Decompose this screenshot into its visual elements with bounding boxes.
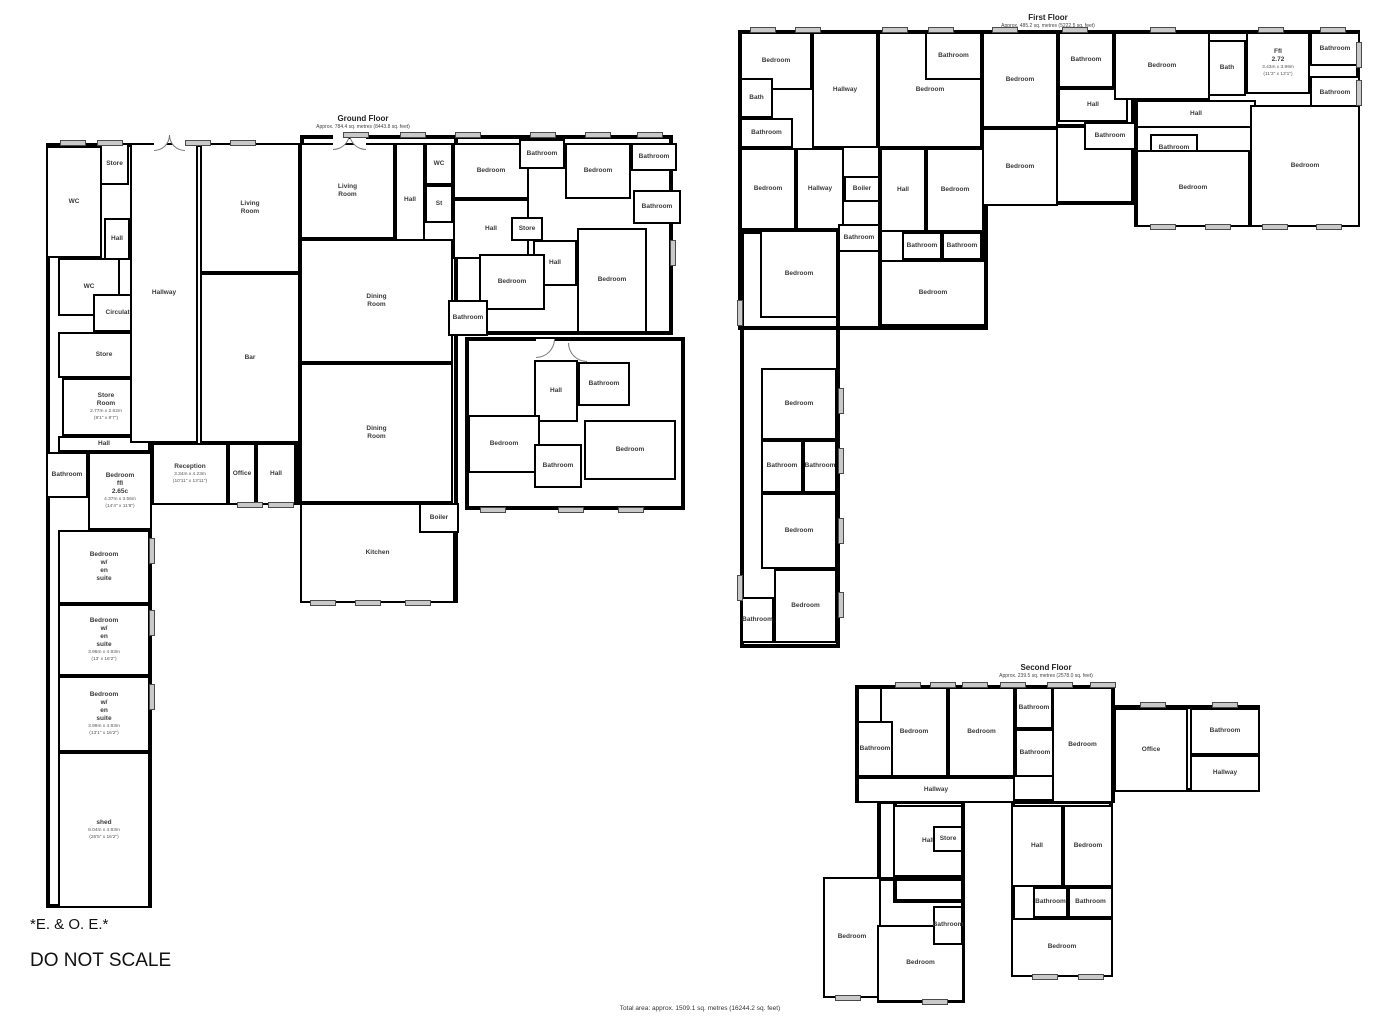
room-bedroom: Bedroom	[1011, 918, 1113, 977]
room-label: Bedroom	[900, 728, 929, 736]
room-bathroom: Bathroom	[838, 224, 880, 252]
window-marker	[530, 132, 556, 138]
room-label: Hall	[404, 196, 416, 204]
room-label: Store	[96, 351, 113, 359]
room-wc: WC	[425, 143, 453, 185]
room-label: Bathroom	[527, 150, 558, 158]
room-label: Bathroom	[453, 314, 484, 322]
room-label: Bathroom	[1210, 727, 1241, 735]
room-dimensions: 3.43m x 3.99m (11'3" x 13'1")	[1262, 65, 1294, 78]
room-label: Bathroom	[844, 234, 875, 242]
room-label: Bathroom	[1071, 56, 1102, 64]
window-marker	[1205, 224, 1231, 230]
room-label: Hallway	[1213, 769, 1237, 777]
window-marker	[405, 600, 431, 606]
window-marker	[737, 300, 743, 326]
room-label: Store	[106, 160, 123, 168]
room-label: Bathroom	[1075, 898, 1106, 906]
room-bedroom: Bedroom	[760, 230, 838, 318]
window-marker	[838, 448, 844, 474]
room-label: Bath	[1220, 64, 1234, 72]
window-marker	[1212, 702, 1238, 708]
room-label: Bedroom	[785, 527, 814, 535]
room-label: Bedroom ffl 2.65c	[106, 472, 135, 496]
window-marker	[480, 507, 506, 513]
room-hallway: Hallway	[857, 777, 1015, 803]
room-ffl-2-72: Ffl 2.723.43m x 3.99m (11'3" x 13'1")	[1246, 32, 1310, 94]
window-marker	[343, 132, 369, 138]
room-bar: Bar	[200, 273, 300, 443]
room-bathroom: Bathroom	[1015, 729, 1055, 777]
room-label: Bedroom	[906, 959, 935, 967]
room-wc: WC	[46, 146, 102, 258]
room-label: Bedroom	[584, 167, 613, 175]
room-bedroom: Bedroom	[774, 569, 837, 643]
window-marker	[1356, 80, 1362, 106]
room-bathroom: Bathroom	[761, 440, 803, 493]
room-label: Hall	[1031, 842, 1043, 850]
room-label: Kitchen	[366, 549, 390, 557]
room-label: Hall	[111, 235, 123, 243]
room-bedroom-w-en-suite: Bedroom w/ en suite3.96m x 4.93m (13' x …	[58, 604, 150, 676]
room-label: Hall	[1087, 101, 1099, 109]
room-office: Office	[228, 443, 256, 505]
window-marker	[149, 610, 155, 636]
floor-title-text: Ground Floor	[253, 114, 473, 123]
room-living-room: Living Room	[300, 143, 395, 239]
room-bathroom: Bathroom	[942, 232, 982, 260]
room-bedroom: Bedroom	[823, 877, 881, 998]
window-marker	[1090, 682, 1116, 688]
room-dimensions: 2.77m x 2.62m (9'1" x 8'7")	[90, 409, 122, 422]
window-marker	[1032, 974, 1058, 980]
window-marker	[962, 682, 988, 688]
room-bathroom: Bathroom	[925, 32, 982, 80]
room-bedroom: Bedroom	[761, 368, 837, 440]
window-marker	[185, 140, 211, 146]
room-label: Hall	[485, 225, 497, 233]
room-label: Bathroom	[639, 153, 670, 161]
room-bedroom-w-en-suite: Bedroom w/ en suite	[58, 530, 150, 604]
room-bedroom: Bedroom	[982, 128, 1058, 206]
window-marker	[97, 140, 123, 146]
room-bathroom: Bathroom	[534, 444, 582, 488]
room-bedroom: Bedroom	[1052, 687, 1113, 803]
room-label: Bathroom	[1095, 132, 1126, 140]
room-label: Store Room	[97, 392, 115, 408]
window-marker	[558, 507, 584, 513]
room-bedroom: Bedroom	[1114, 32, 1210, 100]
room-label: Office	[1142, 746, 1160, 754]
room-label: Bedroom	[498, 278, 527, 286]
room-label: Hall	[98, 440, 110, 448]
floor-title-text: Second Floor	[936, 663, 1156, 672]
first-floor-title: First FloorApprox. 485.2 sq. metres (522…	[938, 13, 1158, 29]
room-hall: Hall	[256, 443, 296, 505]
room-bathroom: Bathroom	[1015, 687, 1053, 729]
room-dimensions: 3.99m x 4.93m (13'1" x 16'2")	[88, 724, 120, 737]
room-bedroom: Bedroom	[880, 260, 986, 326]
room-bedroom: Bedroom	[479, 254, 545, 310]
room-dimensions: 3.34m x 4.23m (10'11" x 13'11")	[173, 472, 207, 485]
room-bathroom: Bathroom	[1033, 887, 1068, 918]
room-boiler: Boiler	[844, 176, 880, 202]
window-marker	[795, 27, 821, 33]
room-label: Hall	[550, 387, 562, 395]
room-label: Bedroom	[1291, 162, 1320, 170]
room-bathroom: Bathroom	[1068, 887, 1113, 918]
window-marker	[895, 682, 921, 688]
window-marker	[268, 502, 294, 508]
window-marker	[1140, 702, 1166, 708]
room-label: Ffl 2.72	[1272, 48, 1285, 64]
room-bathroom: Bathroom	[519, 139, 565, 169]
room-store: Store	[511, 217, 543, 241]
room-bedroom: Bedroom	[926, 148, 984, 232]
window-marker	[670, 240, 676, 266]
room-label: Bathroom	[1020, 749, 1051, 757]
room-label: Bedroom	[477, 167, 506, 175]
room-bathroom: Bathroom	[1310, 32, 1360, 66]
window-marker	[737, 575, 743, 601]
room-label: Bathroom	[1320, 45, 1351, 53]
room-label: Hallway	[833, 86, 857, 94]
room-label: Hall	[897, 186, 909, 194]
room-label: Hall	[270, 470, 282, 478]
room-store: Store	[100, 143, 129, 185]
room-label: Bathroom	[907, 242, 938, 250]
room-bedroom: Bedroom	[468, 415, 540, 473]
room-label: Bedroom	[967, 728, 996, 736]
room-label: Office	[233, 470, 251, 478]
eoe-note: *E. & O. E.*	[30, 916, 108, 933]
window-marker	[1262, 224, 1288, 230]
room-label: Bedroom	[941, 186, 970, 194]
room-hall: Hall	[880, 148, 926, 232]
room-label: Bedroom	[791, 602, 820, 610]
room-bathroom: Bathroom	[803, 440, 837, 493]
room-bathroom: Bathroom	[1058, 32, 1114, 88]
room-dining-room: Dining Room	[300, 363, 453, 503]
room-label: Bathroom	[642, 203, 673, 211]
room-hallway: Hallway	[1190, 755, 1260, 792]
total-area-note: Total area: approx. 1509.1 sq. metres (1…	[560, 1005, 840, 1012]
room-bedroom-w-en-suite: Bedroom w/ en suite3.99m x 4.93m (13'1" …	[58, 676, 150, 752]
window-marker	[585, 132, 611, 138]
room-label: Bathroom	[751, 129, 782, 137]
room-label: Hallway	[924, 786, 948, 794]
window-marker	[750, 27, 776, 33]
room-label: Boiler	[853, 185, 871, 193]
room-bathroom: Bathroom	[631, 143, 677, 171]
floorplan-canvas: *E. & O. E.* DO NOT SCALE Total area: ap…	[0, 0, 1400, 1018]
room-bathroom: Bathroom	[578, 362, 630, 406]
room-bathroom: Bathroom	[740, 118, 793, 148]
room-label: Reception	[174, 463, 205, 471]
room-bedroom: Bedroom	[761, 493, 837, 569]
room-label: Bedroom	[1179, 184, 1208, 192]
room-label: St	[436, 200, 443, 208]
room-label: Bedroom w/ en suite	[90, 691, 119, 724]
room-bathroom: Bathroom	[1190, 708, 1260, 755]
room-living-room: Living Room	[200, 143, 300, 273]
window-marker	[455, 132, 481, 138]
window-marker	[835, 995, 861, 1001]
do-not-scale-note: DO NOT SCALE	[30, 950, 171, 972]
room-bathroom: Bathroom	[933, 906, 963, 945]
window-marker	[1047, 682, 1073, 688]
room-label: Bedroom	[762, 57, 791, 65]
room-shed: shed8.04m x 4.93m (26'5" x 16'2")	[58, 752, 150, 908]
room-label: Store	[519, 225, 536, 233]
room-label: Bedroom	[754, 185, 783, 193]
room-label: Bedroom	[838, 933, 867, 941]
window-marker	[237, 502, 263, 508]
room-label: Bedroom	[785, 400, 814, 408]
room-label: Bathroom	[805, 462, 836, 470]
room-label: WC	[69, 198, 80, 206]
ground-floor-title: Ground FloorApprox. 784.4 sq. metres (84…	[253, 114, 473, 130]
room-label: Bathroom	[742, 616, 773, 624]
room-label: Hallway	[808, 185, 832, 193]
room-bedroom: Bedroom	[1136, 150, 1250, 227]
room-label: Bath	[749, 94, 763, 102]
room-label: Bedroom	[1068, 741, 1097, 749]
room-label: Bedroom	[785, 270, 814, 278]
room-label: Bathroom	[938, 52, 969, 60]
window-marker	[230, 140, 256, 146]
room-hallway: Hallway	[796, 148, 844, 230]
room-label: Bathroom	[1019, 704, 1050, 712]
room-label: Bathroom	[543, 462, 574, 470]
room-bath: Bath	[740, 78, 773, 118]
room-bedroom: Bedroom	[740, 148, 796, 230]
window-marker	[838, 388, 844, 414]
room-label: Bathroom	[767, 462, 798, 470]
second-floor-title: Second FloorApprox. 239.5 sq. metres (25…	[936, 663, 1156, 679]
window-marker	[1150, 224, 1176, 230]
room-bathroom: Bathroom	[741, 597, 774, 643]
room-bedroom: Bedroom	[453, 143, 529, 199]
room-bathroom: Bathroom	[1084, 122, 1136, 150]
room-label: Bedroom	[490, 440, 519, 448]
room-label: Bedroom w/ en suite	[90, 551, 119, 584]
room-label: Bar	[245, 354, 256, 362]
window-marker	[149, 684, 155, 710]
room-bedroom: Bedroom	[1250, 105, 1360, 227]
floor-title-area: Approx. 485.2 sq. metres (5222.5 sq. fee…	[938, 23, 1158, 29]
room-label: Dining Room	[366, 425, 386, 441]
room-label: Bathroom	[1320, 89, 1351, 97]
room-bedroom: Bedroom	[982, 32, 1058, 128]
room-bedroom: Bedroom	[1063, 805, 1113, 887]
room-hallway: Hallway	[130, 143, 198, 443]
window-marker	[1000, 682, 1026, 688]
room-label: Bedroom	[916, 86, 945, 94]
window-marker	[1316, 224, 1342, 230]
room-store: Store	[933, 826, 963, 852]
room-label: Store	[940, 835, 957, 843]
room-label: WC	[434, 160, 445, 168]
floor-title-area: Approx. 239.5 sq. metres (2578.0 sq. fee…	[936, 673, 1156, 679]
room-bathroom: Bathroom	[902, 232, 942, 260]
window-marker	[618, 507, 644, 513]
room-hall: Hall	[534, 360, 578, 422]
window-marker	[838, 592, 844, 618]
window-marker	[1356, 42, 1362, 68]
room-bedroom: Bedroom	[577, 228, 647, 333]
window-marker	[838, 518, 844, 544]
room-bath: Bath	[1208, 40, 1246, 96]
room-label: Bathroom	[52, 471, 83, 479]
room-hallway: Hallway	[812, 32, 878, 148]
window-marker	[922, 999, 948, 1005]
room-bathroom: Bathroom	[448, 300, 488, 336]
room-st: St	[425, 185, 453, 223]
window-marker	[1258, 27, 1284, 33]
room-hall: Hall	[1136, 100, 1256, 128]
room-dimensions: 8.04m x 4.93m (26'5" x 16'2")	[88, 828, 120, 841]
room-bathroom: Bathroom	[46, 452, 88, 498]
room-boiler: Boiler	[419, 503, 459, 533]
window-marker	[637, 132, 663, 138]
window-marker	[355, 600, 381, 606]
window-marker	[930, 682, 956, 688]
room-hall: Hall	[1011, 805, 1063, 887]
room-label: Bedroom	[1074, 842, 1103, 850]
room-bedroom-ffl-2-65c: Bedroom ffl 2.65c4.37m x 3.56m (14'4" x …	[88, 452, 152, 530]
room-label: Bathroom	[860, 745, 891, 753]
room-label: Living Room	[240, 200, 259, 216]
room-office: Office	[1114, 708, 1188, 792]
window-marker	[60, 140, 86, 146]
window-marker	[149, 538, 155, 564]
room-label: Bedroom	[1006, 163, 1035, 171]
room-dimensions: 3.96m x 4.93m (13' x 16'2")	[88, 650, 120, 663]
room-bedroom: Bedroom	[565, 143, 631, 199]
room-label: Dining Room	[366, 293, 386, 309]
room-bedroom: Bedroom	[948, 687, 1015, 777]
room-label: Bedroom w/ en suite	[90, 617, 119, 650]
room-label: Hall	[549, 259, 561, 267]
room-bathroom: Bathroom	[633, 190, 681, 224]
room-dining-room: Dining Room	[300, 239, 453, 363]
room-label: Hallway	[152, 289, 176, 297]
floor-title-text: First Floor	[938, 13, 1158, 22]
room-bathroom: Bathroom	[857, 721, 893, 777]
room-label: Bedroom	[1048, 943, 1077, 951]
window-marker	[1078, 974, 1104, 980]
room-label: Bedroom	[919, 289, 948, 297]
window-marker	[400, 132, 426, 138]
room-label: Bedroom	[1148, 62, 1177, 70]
room-label: shed	[96, 819, 111, 827]
room-bedroom: Bedroom	[584, 420, 676, 480]
room-label: Bathroom	[1035, 898, 1066, 906]
room-label: Living Room	[338, 183, 357, 199]
room-label: Bathroom	[933, 921, 964, 929]
room-label: Bedroom	[1006, 76, 1035, 84]
window-marker	[1320, 27, 1346, 33]
room-label: Bathroom	[947, 242, 978, 250]
floor-title-area: Approx. 784.4 sq. metres (8443.8 sq. fee…	[253, 124, 473, 130]
room-label: Bathroom	[589, 380, 620, 388]
room-label: WC	[84, 283, 95, 291]
window-marker	[882, 27, 908, 33]
room-label: Bedroom	[598, 276, 627, 284]
room-label: Bedroom	[616, 446, 645, 454]
room-label: Boiler	[430, 514, 448, 522]
window-marker	[310, 600, 336, 606]
room-dimensions: 4.37m x 3.56m (14'4" x 11'8")	[104, 497, 136, 510]
room-label: Hall	[1190, 110, 1202, 118]
room-reception: Reception3.34m x 4.23m (10'11" x 13'11")	[152, 443, 228, 505]
room-hall: Hall	[104, 218, 130, 260]
